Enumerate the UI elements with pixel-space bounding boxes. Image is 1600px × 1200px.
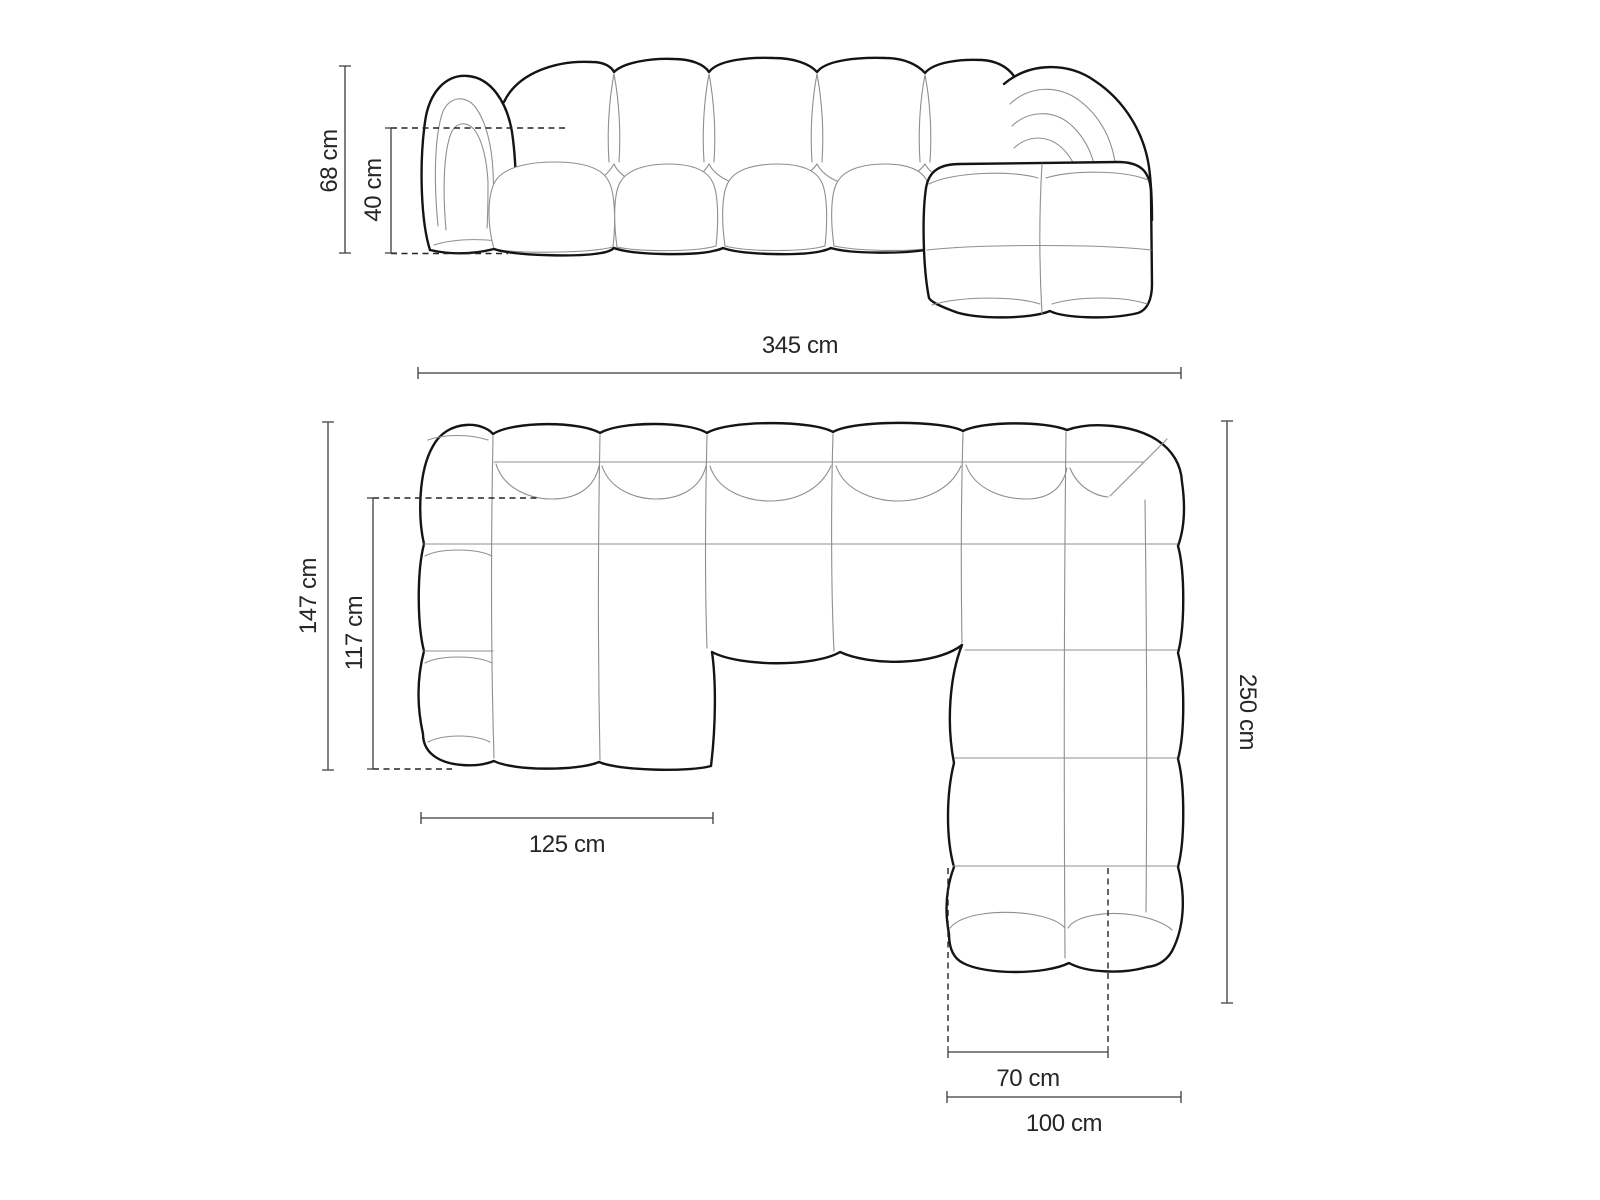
dimension-label-left-section-inner-depth: 117 cm — [341, 596, 368, 671]
dimension-left-section-width: 125 cm — [421, 812, 713, 858]
dimension-label-overall-width: 345 cm — [762, 332, 838, 359]
dimension-right-section-depth: 250 cm — [1221, 421, 1261, 1003]
dimension-label-overall-height: 68 cm — [316, 129, 343, 192]
top-view-silhouette — [419, 423, 1184, 972]
dimension-label-chaise-seat-width: 70 cm — [996, 1065, 1059, 1092]
dimension-label-chaise-total-width: 100 cm — [1026, 1110, 1102, 1137]
front-chaise-block — [924, 162, 1152, 317]
dimension-chaise-total-width: 100 cm — [947, 1091, 1181, 1137]
front-view-drawing: 68 cm 40 cm 345 cm — [316, 58, 1181, 379]
dimension-overall-height: 68 cm — [316, 66, 351, 253]
dimension-chaise-seat-width: 70 cm — [948, 1046, 1108, 1092]
dimension-overall-width: 345 cm — [418, 332, 1181, 379]
dimension-label-right-section-depth: 250 cm — [1234, 674, 1261, 750]
dimension-left-section-inner-depth: 117 cm — [341, 498, 379, 769]
top-view-drawing: 147 cm 117 cm 125 cm 250 cm 70 cm 100 cm — [295, 421, 1261, 1137]
dimension-label-left-section-width: 125 cm — [529, 831, 605, 858]
dimension-label-seat-height: 40 cm — [360, 158, 387, 221]
sofa-dimension-diagram: 68 cm 40 cm 345 cm — [0, 0, 1600, 1200]
front-seat-cushions — [430, 162, 932, 255]
dimension-label-left-section-depth: 147 cm — [295, 558, 322, 634]
dimension-seat-height: 40 cm — [360, 128, 397, 253]
dimension-left-section-depth: 147 cm — [295, 422, 334, 770]
